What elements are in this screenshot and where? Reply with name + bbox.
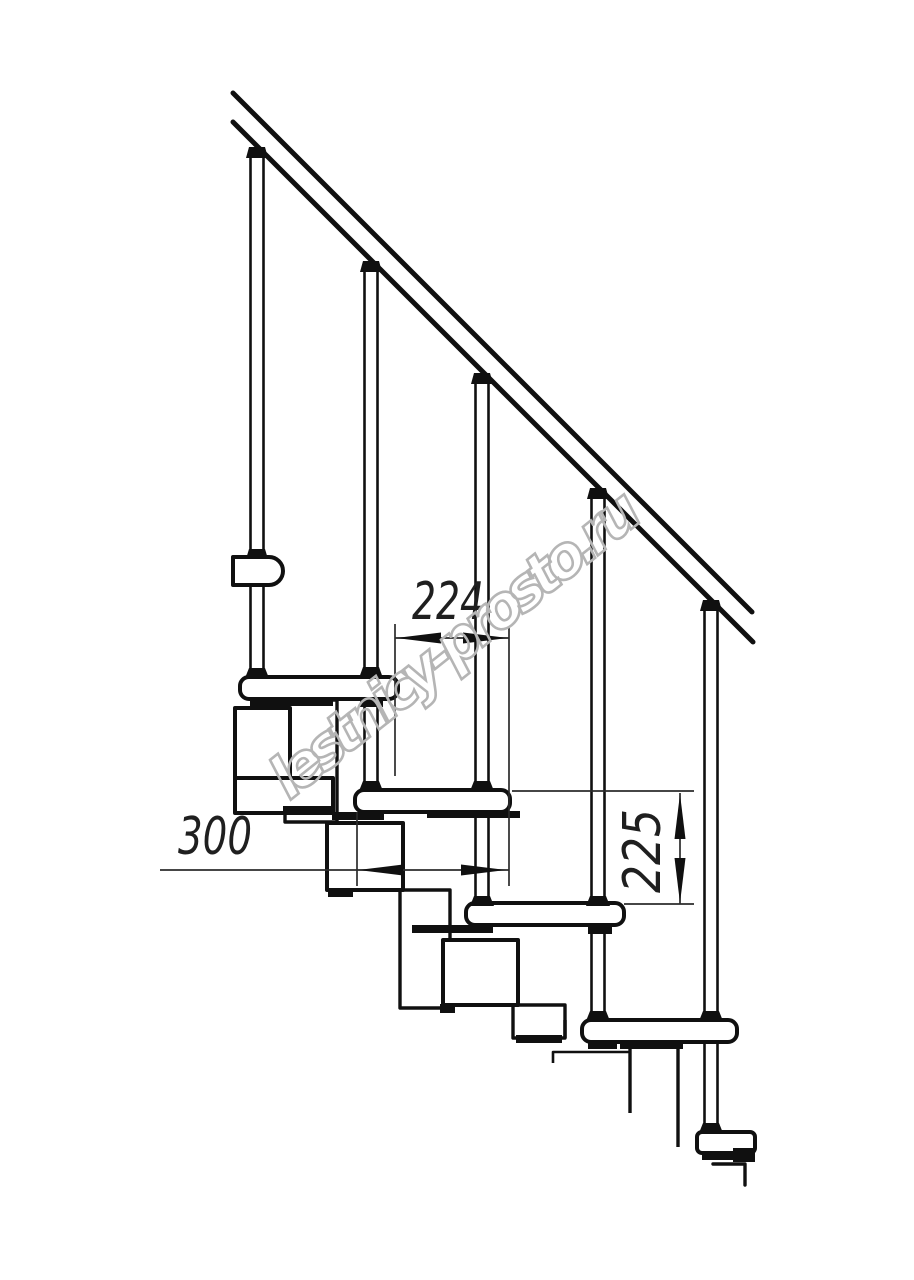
drawing-canvas: 224 300 225 lestnicy-prosto.ru (0, 0, 914, 1280)
floor-hook-outline (713, 1164, 745, 1185)
module-2-nub (328, 888, 353, 897)
dimension-label-300: 300 (178, 807, 252, 867)
collar (359, 781, 383, 791)
landing-bracket (233, 557, 283, 585)
collar (699, 1011, 723, 1021)
module-3-column-shadow (516, 1035, 562, 1043)
tread-2 (355, 790, 510, 812)
arrowhead-down (675, 858, 686, 903)
dimension-label-225: 225 (613, 809, 673, 893)
collar (245, 668, 269, 678)
module-3-nub (440, 1004, 455, 1013)
collar (470, 781, 494, 791)
module-2 (327, 823, 403, 890)
staircase-drawing: 224 300 225 lestnicy-prosto.ru (0, 0, 914, 1280)
step-soffit-outline (553, 1052, 630, 1063)
module-3-column (513, 1005, 565, 1038)
collar (470, 896, 494, 906)
dimension-225: 225 (512, 791, 694, 904)
tread-3 (466, 903, 624, 925)
arrowhead-right (461, 865, 506, 876)
baluster-5 (705, 602, 718, 1132)
tread-4 (582, 1020, 737, 1042)
handrail (233, 93, 753, 642)
collar (586, 1011, 610, 1021)
handrail-top-line (233, 93, 752, 612)
watermark-text: lestnicy-prosto.ru (256, 476, 653, 811)
module-3 (443, 940, 518, 1005)
upper-flight-module-shadow (283, 806, 333, 814)
baluster-1 (251, 150, 264, 677)
collar (586, 896, 610, 906)
collar (699, 1123, 723, 1133)
arrowhead-up (675, 794, 686, 839)
handrail-bottom-line (233, 122, 753, 642)
